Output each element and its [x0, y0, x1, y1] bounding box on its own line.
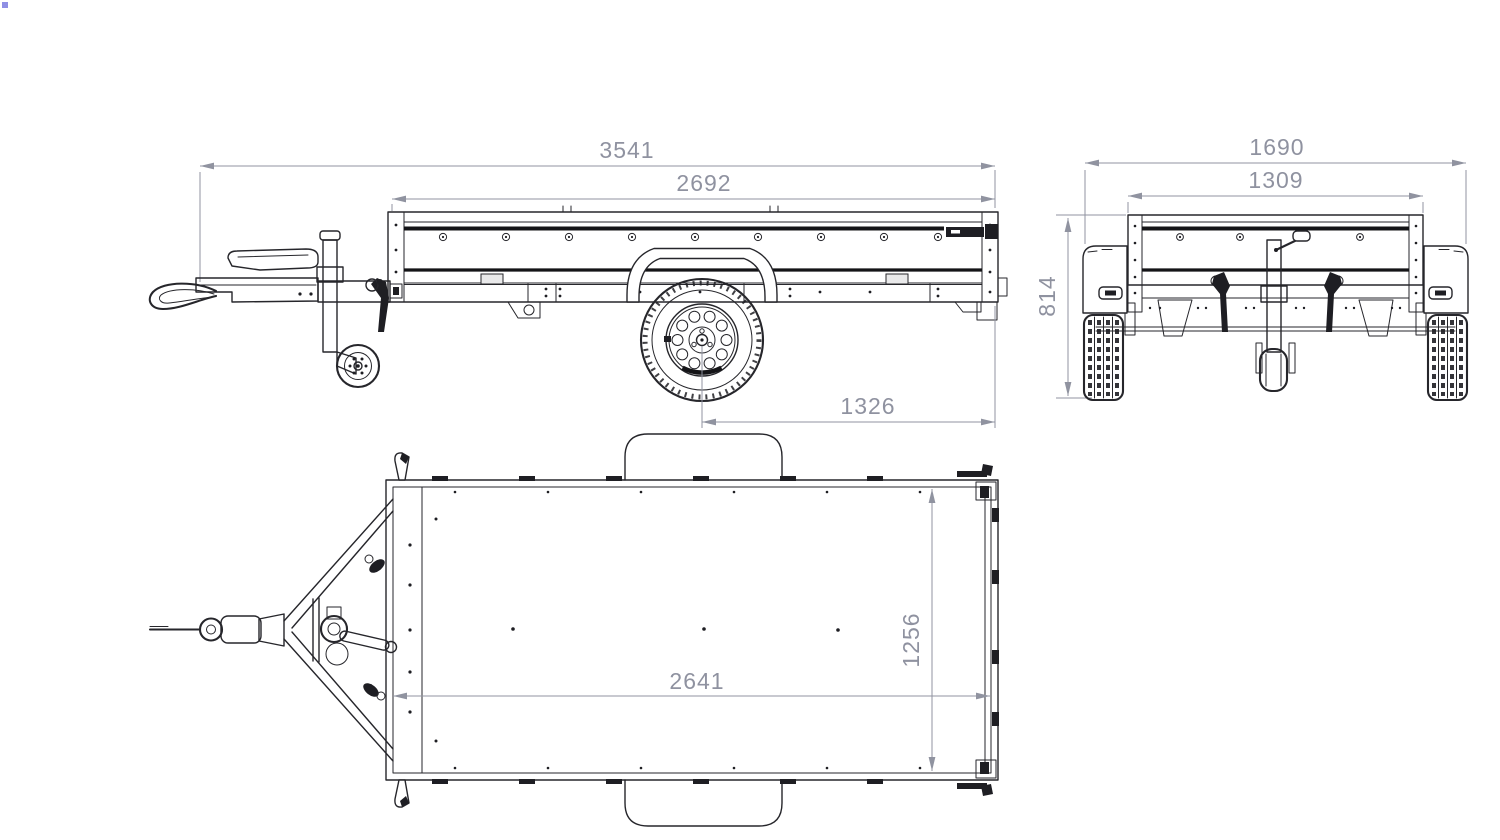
jockey-clamp-knob [320, 231, 340, 240]
hitch-plate [259, 614, 284, 646]
dim-text-bed-height: 814 [1034, 275, 1060, 316]
trailer-bed-side [388, 206, 1007, 320]
right-brake-linkage [1324, 272, 1343, 332]
post-bolts-rear [1134, 225, 1418, 295]
lower-shackle [361, 681, 385, 700]
drawbar-top [150, 499, 397, 761]
crank-handle-knob [1293, 231, 1310, 241]
right-wheel-rear [1428, 315, 1467, 400]
hitch-ring [200, 619, 222, 641]
left-wheel-rear [1084, 315, 1123, 400]
side-view: 3541 2692 [150, 137, 1007, 428]
coupling-handle [228, 249, 318, 270]
bolt-row-side [439, 233, 941, 240]
side-reflector-front [481, 274, 503, 284]
dim-inner-width: 1256 [898, 489, 935, 771]
dim-bed-width: 1309 [1128, 167, 1423, 213]
front-corner-flags [395, 453, 409, 807]
jockey-wheel-top [321, 607, 397, 665]
side-reflector-rear [886, 274, 908, 284]
tailgate-hinge-ticks [563, 206, 778, 212]
right-mudguard [1424, 246, 1468, 313]
rear-corner-brackets [957, 464, 996, 796]
jockey-wheel-side [317, 231, 379, 387]
dim-text-inner-length: 2641 [669, 668, 724, 694]
upper-shackle [365, 555, 387, 575]
left-brake-linkage [1211, 272, 1230, 332]
coupling-top [221, 616, 261, 643]
trailer-bed-rear [1118, 215, 1433, 312]
trailer-three-view-drawing: 3541 2692 [0, 0, 1500, 840]
safety-cable-loop [150, 284, 216, 309]
dim-inner-length: 2641 [393, 668, 990, 699]
floor-rivets [408, 491, 921, 770]
fender-side [627, 249, 777, 303]
dim-axle-to-rear: 1326 [702, 306, 995, 428]
drawbar-hitch-side [150, 231, 540, 387]
technical-drawing-canvas: 3541 2692 [0, 0, 1500, 840]
rear-post-foot [977, 302, 997, 320]
rear-view: 1690 1309 814 [1034, 134, 1468, 400]
dim-text-overall-width: 1690 [1249, 134, 1304, 160]
dim-bed-length: 2692 [392, 170, 995, 211]
dim-text-overall-length: 3541 [599, 137, 654, 163]
left-mudguard [1083, 246, 1127, 313]
tire-footprint-bottom [625, 780, 782, 826]
tire-footprint-top [625, 434, 782, 480]
dim-text-axle-to-rear: 1326 [840, 393, 895, 419]
cursor-artifact [2, 2, 8, 8]
top-view: 2641 1256 [150, 434, 999, 826]
drawbar-mount-bracket [508, 302, 540, 318]
rear-board-holder [998, 278, 1007, 296]
underside-rivets [1149, 307, 1401, 309]
right-corner-post-rear [1409, 215, 1423, 312]
dim-text-inner-width: 1256 [898, 612, 924, 667]
dim-overall-length: 3541 [200, 137, 995, 282]
chassis-rear [1096, 272, 1455, 336]
left-corner-post-rear [1128, 215, 1142, 312]
handbrake-lever-side [366, 278, 389, 332]
jockey-wheel-rear [1256, 231, 1310, 391]
dim-text-bed-length: 2692 [676, 170, 731, 196]
dim-text-bed-width: 1309 [1248, 167, 1303, 193]
